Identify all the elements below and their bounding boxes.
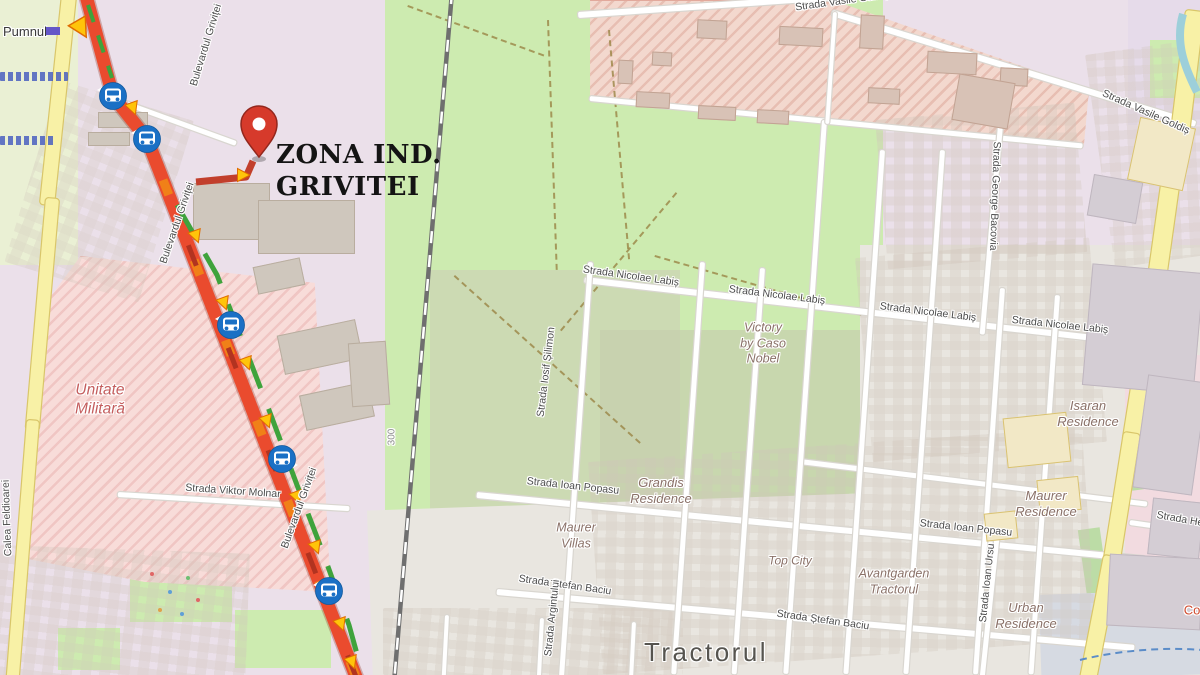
map-canvas[interactable]: Calea FeldioareiBulevardul GrivițeiBulev… [0, 0, 1200, 675]
bus-stop-icon[interactable] [215, 312, 245, 339]
destination-line2: GRIVITEI [276, 171, 442, 203]
markers-layer [0, 0, 1200, 675]
bus-stop-icon[interactable] [269, 446, 299, 473]
bus-stop-icon[interactable] [131, 126, 161, 153]
bus-stop-icon[interactable] [97, 83, 127, 110]
destination-line1: ZONA IND. [276, 139, 442, 171]
destination-pin[interactable] [241, 106, 277, 162]
destination-label: ZONA IND. GRIVITEI [276, 139, 442, 203]
bus-stop-icon[interactable] [313, 578, 343, 605]
